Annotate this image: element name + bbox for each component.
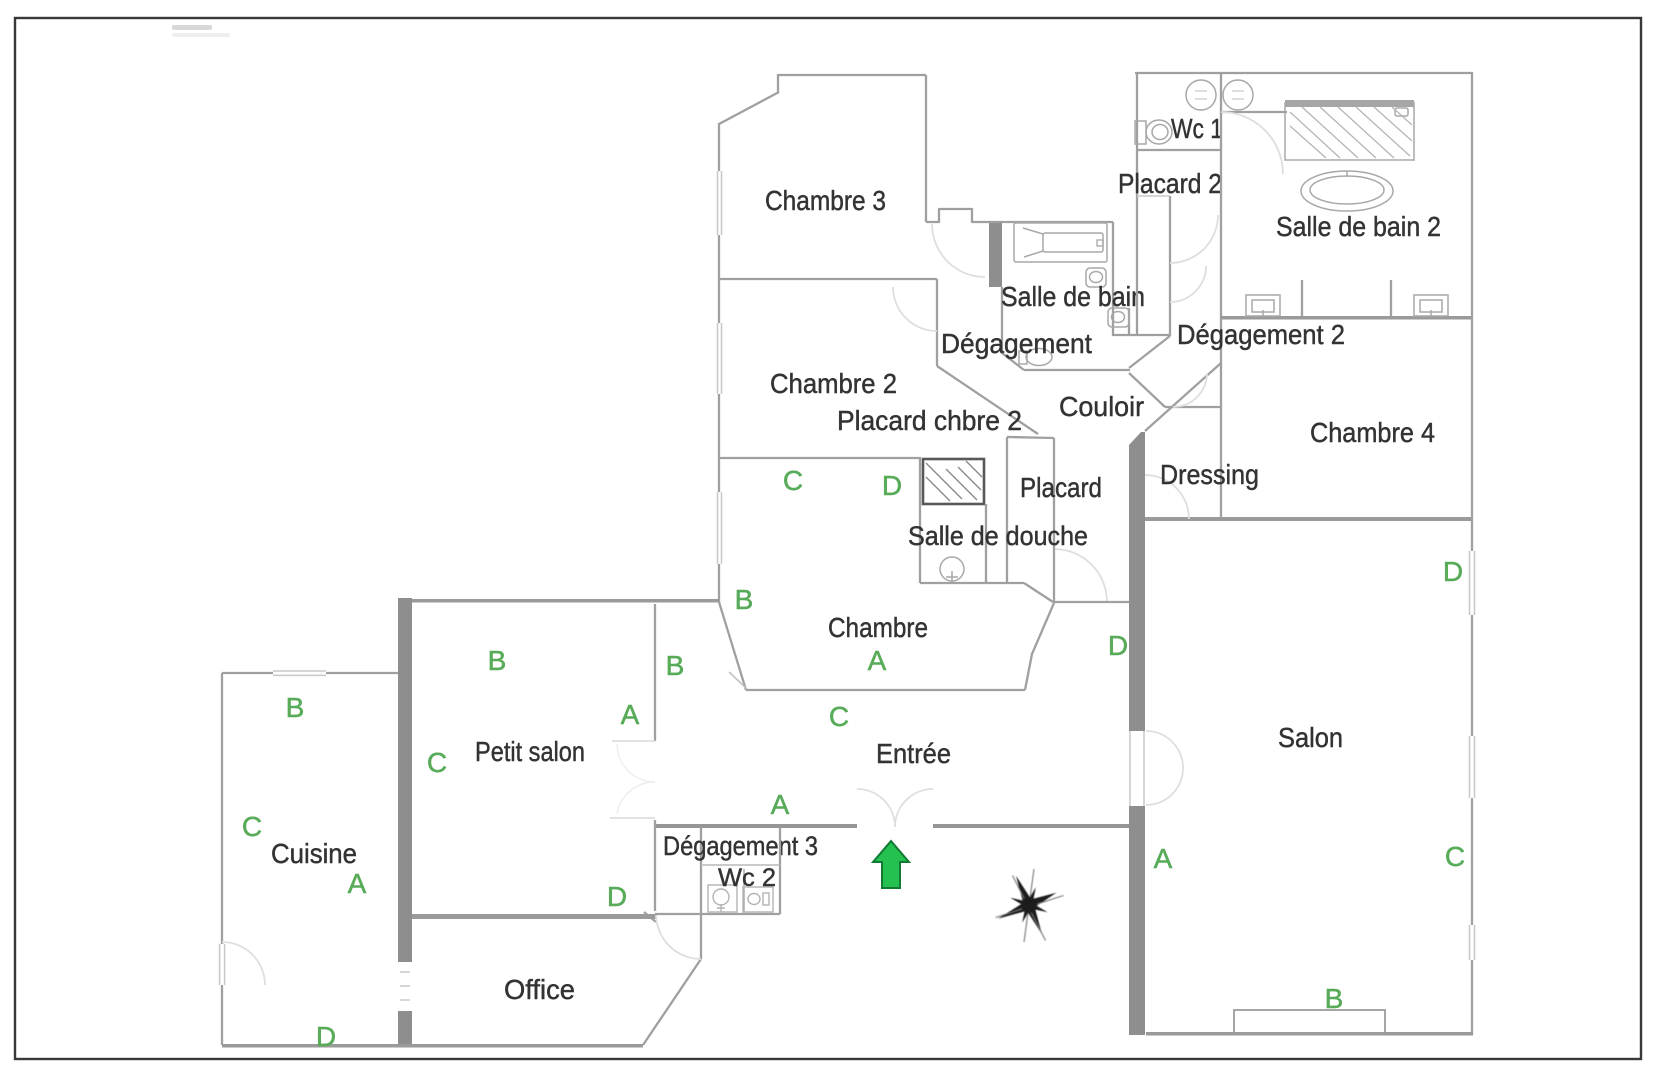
svg-text:A: A [1154, 843, 1173, 874]
svg-text:Placard chbre 2: Placard chbre 2 [837, 405, 1022, 436]
svg-text:Chambre: Chambre [828, 612, 928, 643]
svg-text:Wc 2: Wc 2 [718, 864, 776, 892]
svg-text:D: D [882, 470, 902, 501]
svg-text:Chambre 3: Chambre 3 [765, 185, 886, 216]
svg-text:Dégagement 2: Dégagement 2 [1177, 319, 1345, 350]
svg-text:Entrée: Entrée [876, 738, 951, 769]
svg-text:C: C [242, 811, 262, 842]
svg-text:Salle de bain 2: Salle de bain 2 [1276, 211, 1441, 242]
svg-text:Cuisine: Cuisine [271, 838, 357, 869]
svg-text:C: C [1445, 841, 1465, 872]
svg-text:A: A [621, 699, 640, 730]
svg-text:D: D [1108, 630, 1128, 661]
svg-text:A: A [348, 868, 367, 899]
svg-text:B: B [488, 645, 507, 676]
svg-text:C: C [427, 747, 447, 778]
svg-text:Dégagement: Dégagement [941, 328, 1092, 359]
svg-text:Office: Office [504, 974, 575, 1005]
svg-text:B: B [735, 584, 754, 615]
svg-text:Salon: Salon [1278, 722, 1343, 753]
svg-text:D: D [607, 881, 627, 912]
svg-text:Petit salon: Petit salon [475, 736, 585, 767]
svg-text:A: A [868, 645, 887, 676]
svg-text:B: B [1325, 983, 1344, 1014]
svg-text:C: C [783, 465, 803, 496]
svg-text:B: B [286, 692, 305, 723]
svg-text:Chambre 4: Chambre 4 [1310, 417, 1435, 448]
svg-text:Dressing: Dressing [1160, 459, 1259, 490]
svg-text:B: B [666, 650, 685, 681]
svg-text:Chambre 2: Chambre 2 [770, 368, 897, 399]
svg-text:Salle de bain: Salle de bain [1001, 281, 1145, 312]
svg-text:D: D [316, 1021, 336, 1052]
svg-text:C: C [829, 701, 849, 732]
svg-text:Placard: Placard [1020, 472, 1102, 503]
svg-text:Placard 2: Placard 2 [1118, 168, 1222, 199]
svg-text:Couloir: Couloir [1059, 391, 1144, 422]
svg-text:Dégagement 3: Dégagement 3 [663, 831, 818, 861]
svg-text:Wc 1: Wc 1 [1171, 113, 1223, 144]
svg-text:A: A [771, 789, 790, 820]
svg-text:Salle de douche: Salle de douche [908, 521, 1088, 551]
svg-text:D: D [1443, 556, 1463, 587]
